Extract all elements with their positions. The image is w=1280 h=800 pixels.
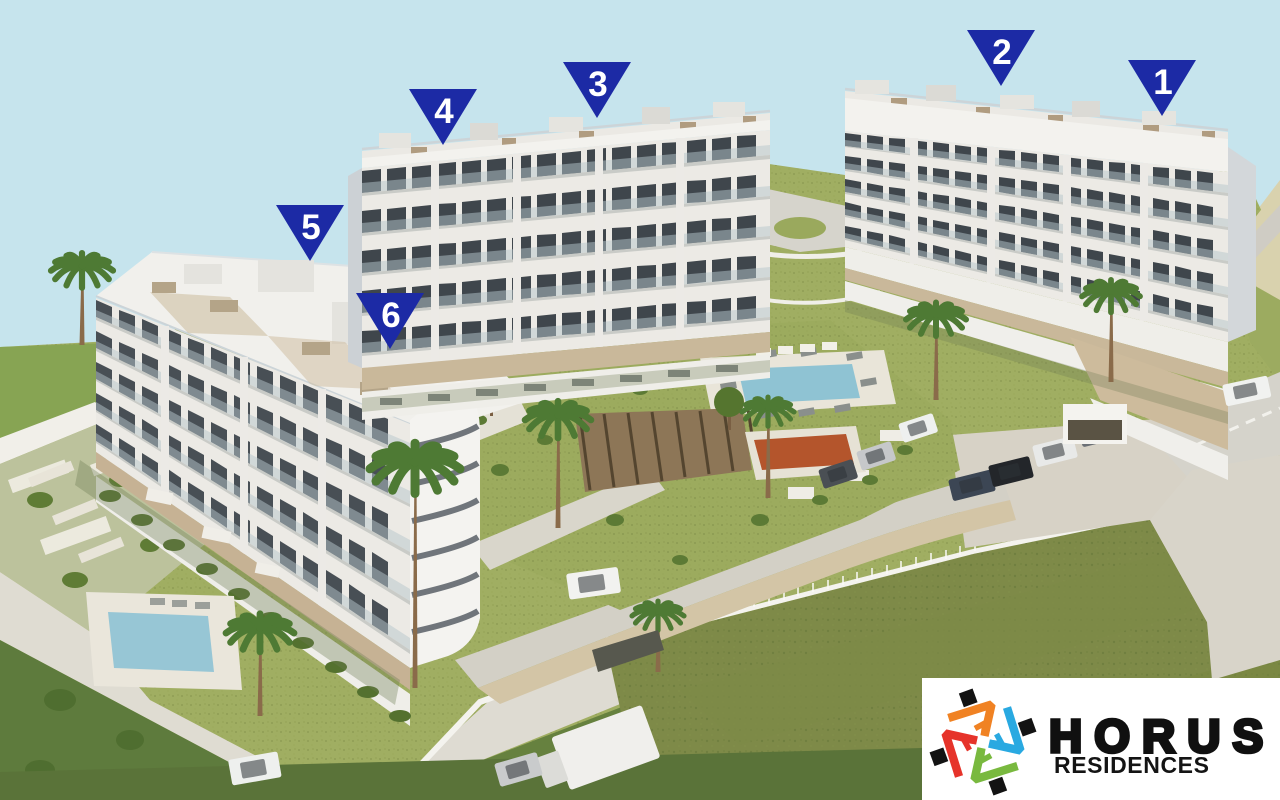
svg-text:2: 2 <box>992 33 1011 72</box>
svg-text:5: 5 <box>301 208 320 247</box>
svg-text:6: 6 <box>381 296 400 335</box>
svg-text:1: 1 <box>1153 63 1172 102</box>
svg-text:3: 3 <box>588 65 607 104</box>
svg-text:RESIDENCES: RESIDENCES <box>1054 752 1210 778</box>
svg-text:4: 4 <box>434 92 454 131</box>
